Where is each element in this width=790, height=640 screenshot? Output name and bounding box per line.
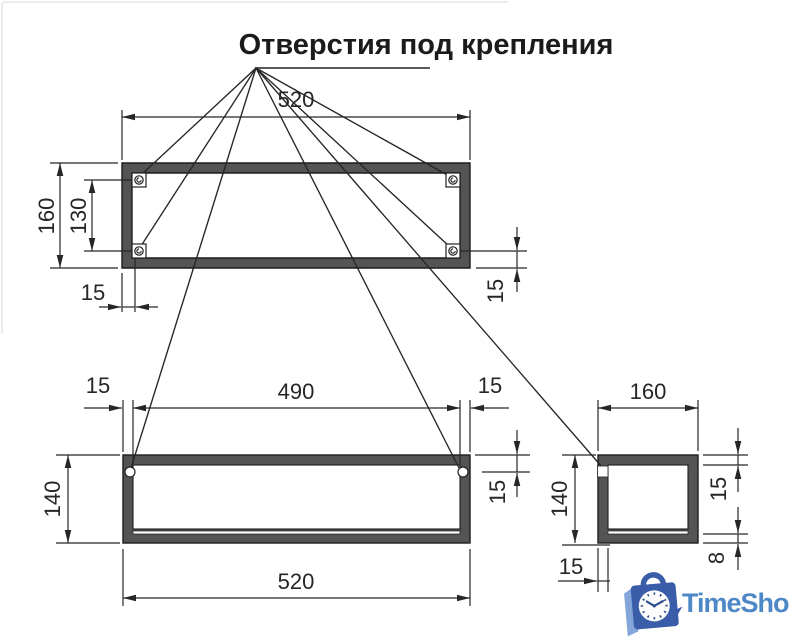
- timeshop-logo: TimeShop: [623, 573, 790, 637]
- dim-side-top-wall: 15: [703, 428, 748, 501]
- dim-label-side-depth: 160: [630, 379, 667, 404]
- dim-label-side-height: 140: [547, 481, 572, 518]
- dim-front-hole-offset-top: 15: [475, 430, 530, 504]
- dim-front-width: 520: [123, 549, 470, 606]
- dim-label-top-hole-spacing: 130: [66, 198, 91, 235]
- side-view-opening: [608, 465, 688, 529]
- side-view-bottom-edge: [608, 531, 688, 534]
- dim-front-height: 140: [40, 455, 120, 543]
- dim-label-side-wall: 15: [559, 554, 583, 579]
- leader-line: [256, 68, 449, 176]
- dim-front-hole-spacing: 490: [123, 379, 470, 467]
- leader-line: [256, 68, 450, 247]
- mounting-hole: [446, 173, 460, 187]
- top-view-frame: [122, 163, 470, 268]
- dim-label-side-top-wall: 15: [706, 477, 731, 501]
- timeshop-bag-icon: [623, 573, 685, 637]
- top-view: 520 160 130 15: [34, 87, 527, 312]
- front-view: 490 15 15 140 15: [40, 373, 530, 606]
- top-view-holes: [132, 173, 460, 258]
- technical-drawing: Отверстия под крепления 520 160 130: [0, 0, 790, 640]
- drawing-title: Отверстия под крепления: [239, 29, 614, 61]
- dim-side-depth: 160: [598, 379, 698, 451]
- mounting-hole: [132, 244, 146, 258]
- mounting-hole: [446, 244, 460, 258]
- dim-top-outer-width: 520: [122, 87, 470, 160]
- dim-label-front-hole-spacing: 490: [278, 379, 315, 404]
- dim-label-top-height: 160: [34, 198, 59, 235]
- dim-front-offset-left: 15: [84, 373, 122, 408]
- dim-side-bottom-wall: 8: [703, 507, 748, 570]
- dim-label-front-height: 140: [40, 481, 65, 518]
- mounting-hole: [125, 467, 135, 477]
- mounting-hole: [458, 467, 468, 477]
- leader-line: [141, 68, 256, 246]
- timeshop-logo-text: TimeShop: [682, 588, 790, 618]
- dim-label-front-offset-right: 15: [478, 373, 502, 398]
- title-block: Отверстия под крепления: [239, 29, 614, 68]
- side-view: 160 140 15 8: [547, 379, 748, 592]
- dim-label-front-width: 520: [278, 569, 315, 594]
- dim-label-top-hole-offset-x: 15: [81, 280, 105, 305]
- mounting-hole: [598, 466, 609, 477]
- dim-label-front-hole-offset-top: 15: [485, 480, 510, 504]
- dim-label-top-hole-offset-y: 15: [483, 279, 508, 303]
- mounting-hole: [132, 173, 146, 187]
- dim-label-front-offset-left: 15: [86, 373, 110, 398]
- front-view-opening: [133, 465, 460, 529]
- dim-label-side-bottom-wall: 8: [704, 552, 729, 564]
- dim-side-wall: 15: [558, 548, 610, 592]
- front-view-bottom-edge: [133, 531, 460, 534]
- dim-front-offset-right: 15: [471, 373, 509, 408]
